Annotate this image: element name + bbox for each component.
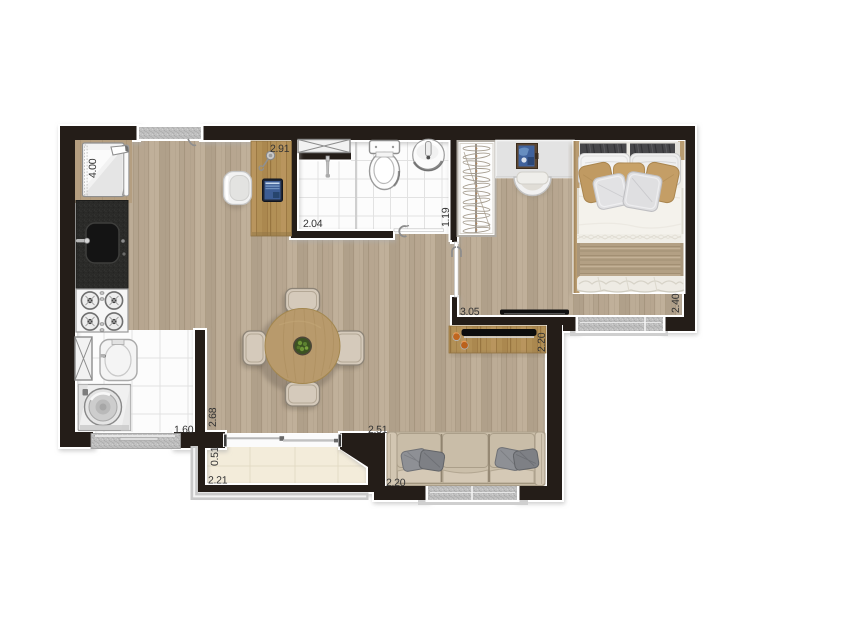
svg-text:4.00: 4.00 bbox=[87, 158, 99, 178]
svg-text:0.51: 0.51 bbox=[209, 446, 221, 466]
svg-text:3.05: 3.05 bbox=[460, 306, 480, 318]
svg-text:2.91: 2.91 bbox=[270, 143, 290, 155]
svg-text:2.20: 2.20 bbox=[386, 477, 406, 489]
svg-text:2.40: 2.40 bbox=[670, 293, 682, 313]
svg-text:1.19: 1.19 bbox=[440, 207, 452, 227]
svg-text:1.60: 1.60 bbox=[174, 424, 194, 436]
svg-text:2.21: 2.21 bbox=[208, 475, 228, 487]
svg-text:2.51: 2.51 bbox=[368, 424, 388, 436]
svg-text:2.68: 2.68 bbox=[207, 407, 219, 427]
svg-text:2.20: 2.20 bbox=[536, 332, 548, 352]
svg-text:2.04: 2.04 bbox=[303, 218, 323, 230]
